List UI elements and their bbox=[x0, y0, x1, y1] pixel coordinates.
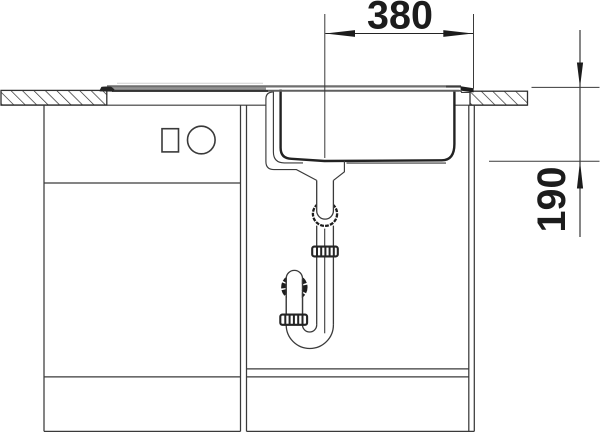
svg-text:190: 190 bbox=[530, 167, 574, 233]
svg-text:380: 380 bbox=[367, 0, 433, 37]
